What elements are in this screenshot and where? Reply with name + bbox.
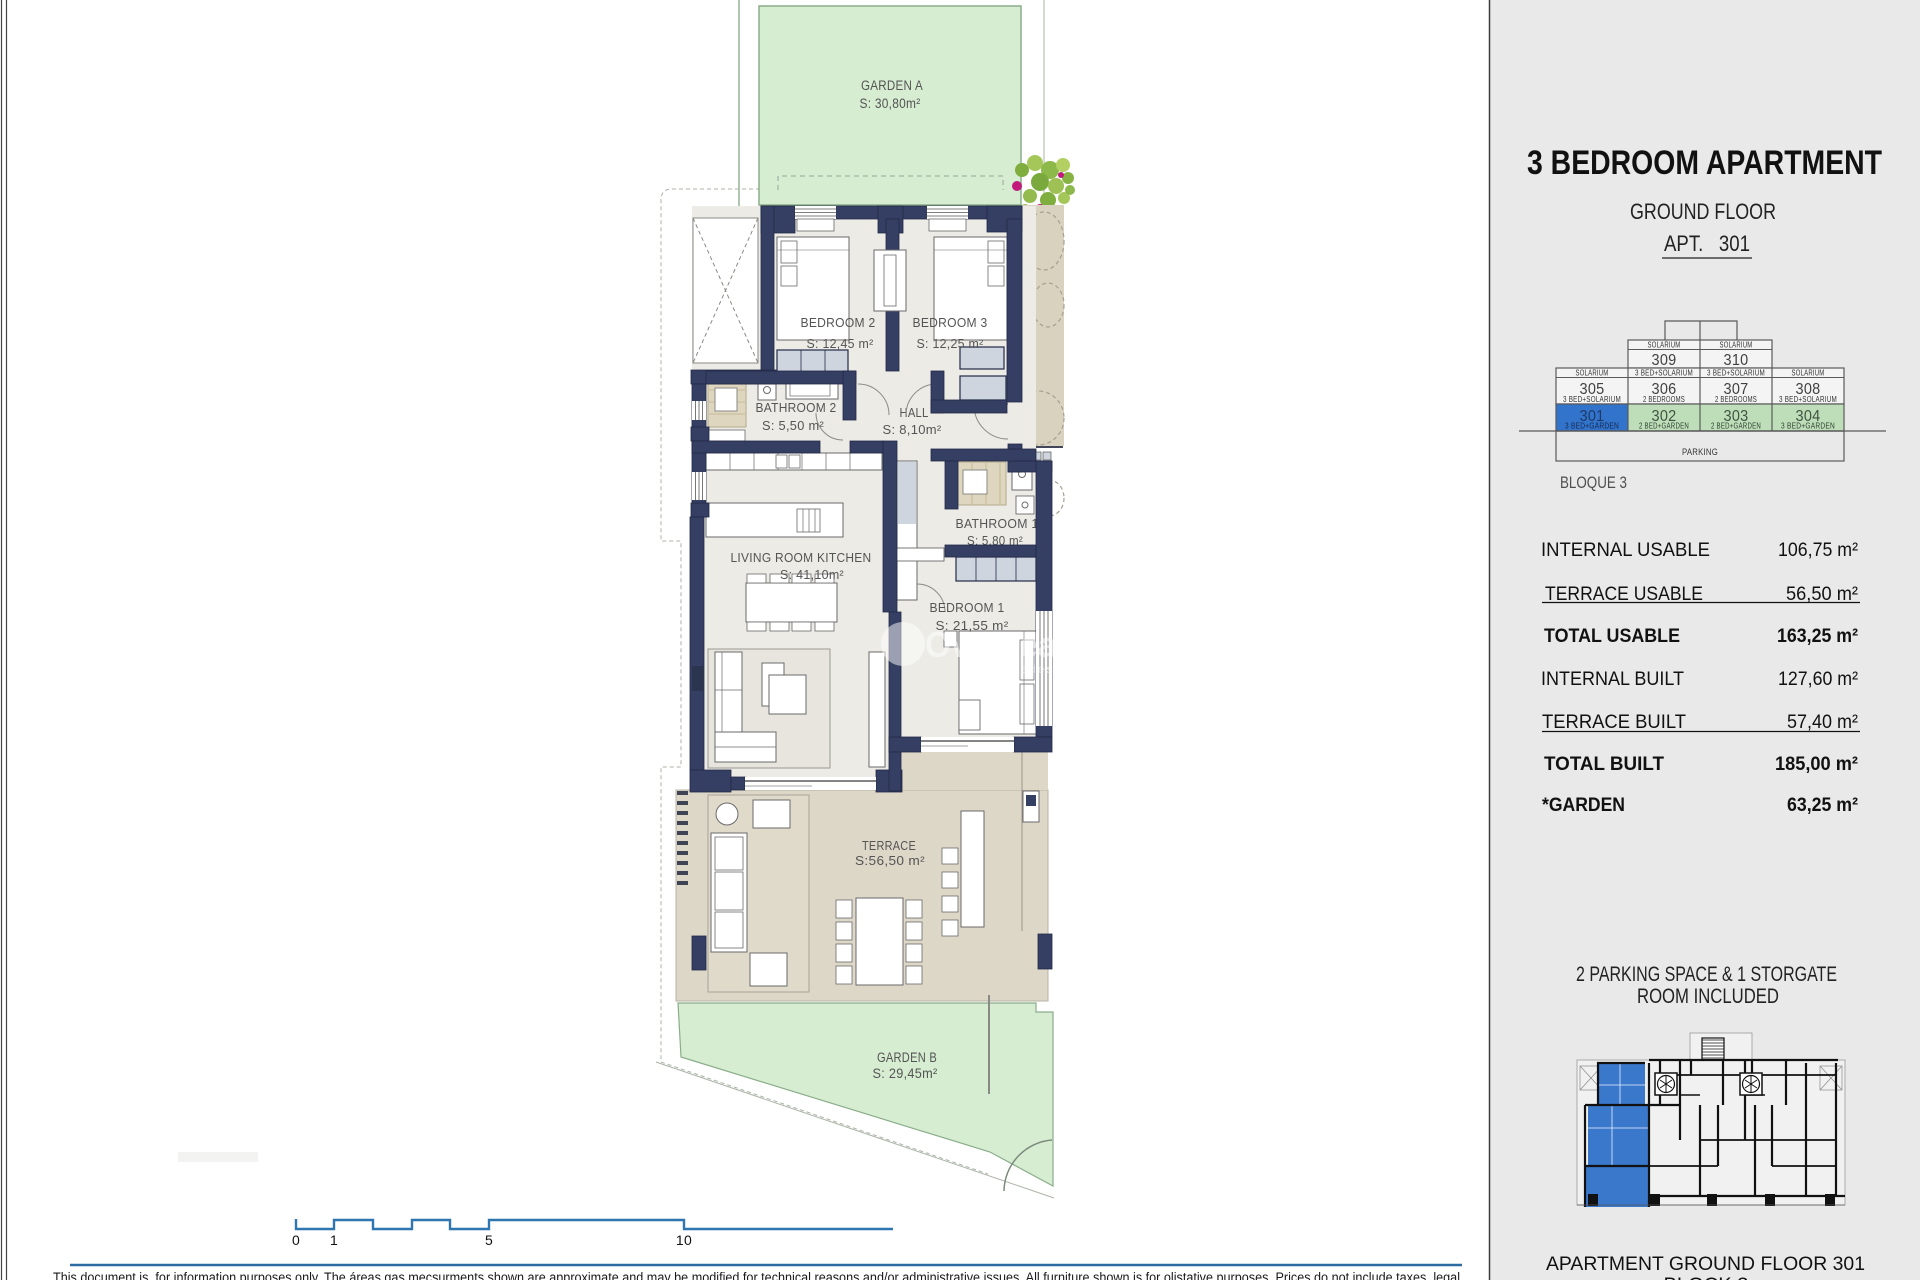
svg-text:2 BEDROOMS: 2 BEDROOMS	[1715, 395, 1757, 404]
svg-text:BEDROOM 1: BEDROOM 1	[930, 600, 1005, 615]
svg-text:3 BEDROOM APARTMENT: 3 BEDROOM APARTMENT	[1527, 144, 1882, 182]
svg-text:Overseas: Overseas	[925, 624, 1075, 665]
svg-text:S: 8,10m²: S: 8,10m²	[883, 422, 942, 437]
svg-text:This document is, for informat: This document is, for information purpos…	[53, 1270, 1460, 1280]
svg-text:APARTMENT GROUND FLOOR 301: APARTMENT GROUND FLOOR 301	[1546, 1253, 1865, 1275]
svg-text:S: 5,50 m²: S: 5,50 m²	[762, 418, 824, 433]
svg-text:TERRACE: TERRACE	[862, 838, 916, 853]
svg-text:TOTAL BUILT: TOTAL BUILT	[1544, 753, 1664, 775]
svg-text:S: 30,80m²: S: 30,80m²	[860, 96, 921, 111]
svg-text:56,50 m²: 56,50 m²	[1786, 583, 1858, 605]
svg-text:SOLARIUM: SOLARIUM	[1720, 341, 1753, 350]
svg-text:BEDROOM 3: BEDROOM 3	[913, 315, 988, 330]
svg-text:TERRACE USABLE: TERRACE USABLE	[1545, 583, 1703, 605]
svg-text:1: 1	[330, 1232, 338, 1248]
svg-text:3 BED+GARDEN: 3 BED+GARDEN	[1565, 422, 1619, 431]
svg-text:57,40 m²: 57,40 m²	[1787, 711, 1858, 733]
svg-text:127,60 m²: 127,60 m²	[1778, 668, 1858, 690]
svg-text:63,25 m²: 63,25 m²	[1787, 794, 1858, 816]
svg-text:309: 309	[1652, 352, 1677, 369]
svg-text:310: 310	[1724, 352, 1749, 369]
svg-text:ROOM INCLUDED: ROOM INCLUDED	[1637, 985, 1779, 1008]
svg-text:BATHROOM 2: BATHROOM 2	[756, 400, 837, 415]
svg-text:PARKING: PARKING	[1682, 447, 1718, 458]
svg-text:163,25 m²: 163,25 m²	[1777, 625, 1858, 647]
svg-text:2 PARKING SPACE & 1 STORGATE: 2 PARKING SPACE & 1 STORGATE	[1576, 963, 1837, 986]
svg-text:3 BED+SOLARIUM: 3 BED+SOLARIUM	[1563, 395, 1621, 404]
svg-text:*GARDEN: *GARDEN	[1542, 794, 1625, 816]
svg-text:GARDEN A: GARDEN A	[861, 78, 923, 93]
svg-text:5: 5	[485, 1232, 493, 1248]
svg-text:185,00 m²: 185,00 m²	[1775, 753, 1858, 775]
svg-text:10: 10	[676, 1232, 692, 1248]
svg-text:3 BED+GARDEN: 3 BED+GARDEN	[1781, 422, 1835, 431]
svg-text:S: 41,10m²: S: 41,10m²	[780, 567, 844, 582]
svg-text:S:56,50 m²: S:56,50 m²	[855, 853, 925, 868]
svg-text:BLOQUE 3: BLOQUE 3	[1560, 473, 1627, 492]
svg-text:106,75 m²: 106,75 m²	[1778, 539, 1858, 561]
svg-text:INTERNAL USABLE: INTERNAL USABLE	[1541, 539, 1710, 561]
svg-text:2 BEDROOMS: 2 BEDROOMS	[1643, 395, 1685, 404]
svg-text:0: 0	[292, 1232, 300, 1248]
svg-text:TERRACE BUILT: TERRACE BUILT	[1542, 711, 1686, 733]
svg-text:S: 29,45m²: S: 29,45m²	[873, 1066, 938, 1081]
svg-text:HALL: HALL	[900, 405, 929, 420]
svg-text:3 BED+SOLARIUM: 3 BED+SOLARIUM	[1707, 369, 1765, 378]
svg-text:INTERNAL BUILT: INTERNAL BUILT	[1541, 668, 1684, 690]
svg-text:2 BED+GARDEN: 2 BED+GARDEN	[1711, 422, 1761, 431]
svg-text:S: 12,25 m²: S: 12,25 m²	[917, 336, 984, 351]
svg-text:Propiedades: Propiedades	[965, 662, 1054, 676]
svg-text:2 BED+GARDEN: 2 BED+GARDEN	[1639, 422, 1689, 431]
svg-text:SOLARIUM: SOLARIUM	[1576, 369, 1609, 378]
svg-text:APT. 301: APT. 301	[1664, 231, 1750, 256]
svg-text:SOLARIUM: SOLARIUM	[1648, 341, 1681, 350]
svg-text:BEDROOM 2: BEDROOM 2	[801, 315, 876, 330]
svg-text:3 BED+SOLARIUM: 3 BED+SOLARIUM	[1779, 395, 1837, 404]
svg-text:BLOCK 3: BLOCK 3	[1664, 1274, 1749, 1280]
svg-text:LIVING ROOM KITCHEN: LIVING ROOM KITCHEN	[731, 550, 872, 565]
svg-text:S: 12,45 m²: S: 12,45 m²	[807, 336, 874, 351]
svg-text:3 BED+SOLARIUM: 3 BED+SOLARIUM	[1635, 369, 1693, 378]
svg-text:TOTAL USABLE: TOTAL USABLE	[1544, 625, 1680, 647]
svg-text:GROUND FLOOR: GROUND FLOOR	[1630, 199, 1776, 224]
svg-text:BATHROOM 1: BATHROOM 1	[956, 516, 1039, 531]
svg-text:SOLARIUM: SOLARIUM	[1792, 369, 1825, 378]
svg-text:GARDEN B: GARDEN B	[877, 1050, 937, 1065]
